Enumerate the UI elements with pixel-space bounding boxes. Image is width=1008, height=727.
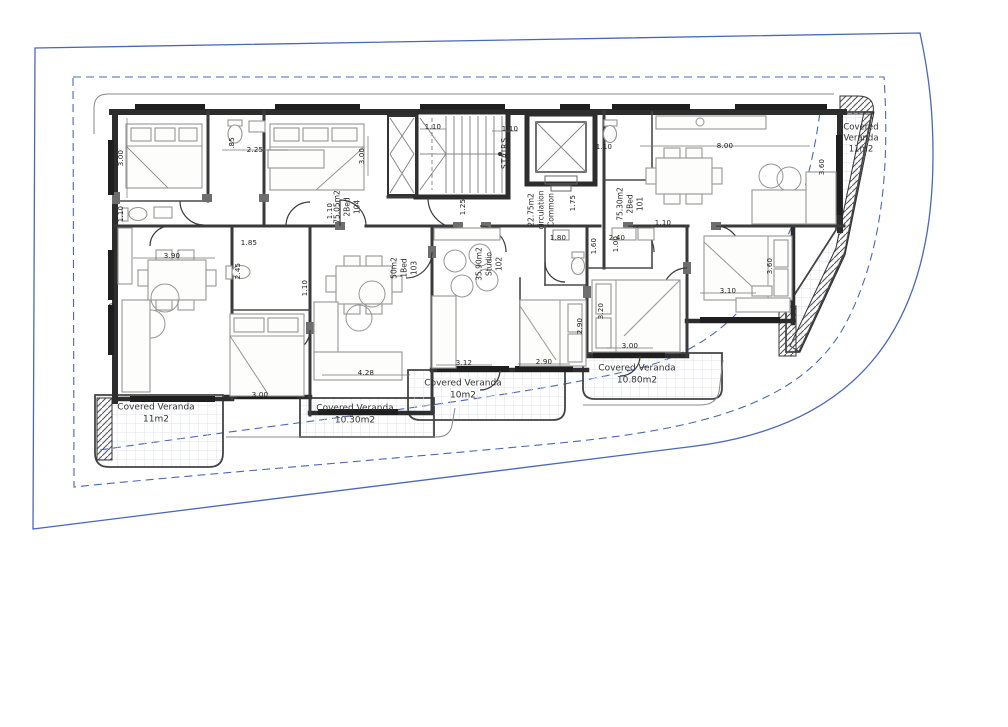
common-label-line2: circulation bbox=[536, 190, 546, 229]
common-area-value: 22.75m2 bbox=[526, 190, 536, 229]
dimension-label: 3.10 bbox=[720, 287, 736, 295]
dimension-label: 1.10 bbox=[326, 203, 334, 219]
unit-number: 102 bbox=[494, 247, 504, 281]
unit-number: 104 bbox=[352, 190, 362, 224]
dimension-label: 3.00 bbox=[622, 342, 638, 350]
dimension-label: 2.90 bbox=[536, 358, 552, 366]
dimension-label: 1.00 bbox=[108, 303, 116, 319]
dimension-label: 1.10 bbox=[425, 123, 441, 131]
unit-label-102: 35.90m2 Studio 102 bbox=[474, 247, 503, 281]
dimension-label: 3.60 bbox=[818, 159, 826, 175]
unit-area: 50m2 bbox=[389, 257, 399, 279]
elevator bbox=[527, 114, 595, 191]
dimension-label: 8.00 bbox=[717, 142, 733, 150]
column-hatched bbox=[97, 398, 112, 460]
bed bbox=[230, 314, 304, 396]
bed bbox=[704, 236, 792, 300]
dimension-label: 1.25 bbox=[459, 199, 467, 215]
dimension-label: 3.90 bbox=[164, 252, 180, 260]
dimension-label: 1.60 bbox=[590, 238, 598, 254]
dimension-label: 3.12 bbox=[456, 359, 472, 367]
unit-number: 103 bbox=[409, 257, 419, 279]
common-label-line1: Common bbox=[546, 190, 556, 229]
dimension-label: 1.10 bbox=[117, 206, 125, 222]
dimension-label: 2.25 bbox=[247, 146, 263, 154]
dimension-label: 2.90 bbox=[576, 318, 584, 334]
dimension-label: 1.85 bbox=[241, 239, 257, 247]
dimension-label: 1.10 bbox=[655, 219, 671, 227]
dimension-label: 3.20 bbox=[597, 303, 605, 319]
unit-number: 101 bbox=[635, 187, 645, 221]
dimension-label: 1.75 bbox=[569, 195, 577, 211]
unit-type: 1Bed bbox=[399, 257, 409, 279]
dimension-label: 1.10 bbox=[502, 125, 518, 133]
floor-plan-canvas: 75.05m2 2Bed 104 50m2 1Bed 103 35.90m2 S… bbox=[0, 0, 1008, 727]
dimension-label: 1.10 bbox=[301, 280, 309, 296]
veranda-label-bottom-center-left: Covered Veranda 10.30m2 bbox=[316, 403, 393, 426]
floor-plan-drawing bbox=[0, 0, 1008, 727]
veranda-label-bottom-left: Covered Veranda 11m2 bbox=[117, 402, 194, 425]
veranda-label-bottom-center: Covered Veranda 10m2 bbox=[424, 378, 501, 401]
dining-table bbox=[646, 148, 722, 204]
dimension-label: 3.00 bbox=[117, 150, 125, 166]
unit-type: 2Bed bbox=[342, 190, 352, 224]
dimension-label: 1.00 bbox=[612, 236, 620, 252]
veranda-label-right: Covered Veranda 11m2 bbox=[843, 122, 878, 155]
unit-type: 2Bed bbox=[625, 187, 635, 221]
dimension-label: 3.60 bbox=[766, 258, 774, 274]
service-shaft bbox=[388, 116, 416, 195]
dimension-label: 1.10 bbox=[596, 143, 612, 151]
dimension-label: 2.45 bbox=[234, 263, 242, 279]
stairs-label: STAIRS bbox=[500, 137, 510, 169]
dimension-label: 4.28 bbox=[358, 369, 374, 377]
bed bbox=[126, 124, 202, 188]
unit-area: 35.90m2 bbox=[474, 247, 484, 281]
veranda-label-bottom-right: Covered Veranda 10.80m2 bbox=[598, 363, 675, 386]
dimension-label: 1.80 bbox=[550, 234, 566, 242]
dimension-label: 3.00 bbox=[358, 148, 366, 164]
unit-label-103: 50m2 1Bed 103 bbox=[389, 257, 418, 279]
unit-type: Studio bbox=[484, 247, 494, 281]
unit-label-104: 75.05m2 2Bed 104 bbox=[332, 190, 361, 224]
unit-label-101: 75.30m2 2Bed 101 bbox=[615, 187, 644, 221]
unit-area: 75.30m2 bbox=[615, 187, 625, 221]
common-circulation-label: 22.75m2 circulation Common bbox=[526, 190, 555, 229]
dimension-label: 3.00 bbox=[252, 391, 268, 399]
dimension-label: .85 bbox=[228, 137, 236, 149]
